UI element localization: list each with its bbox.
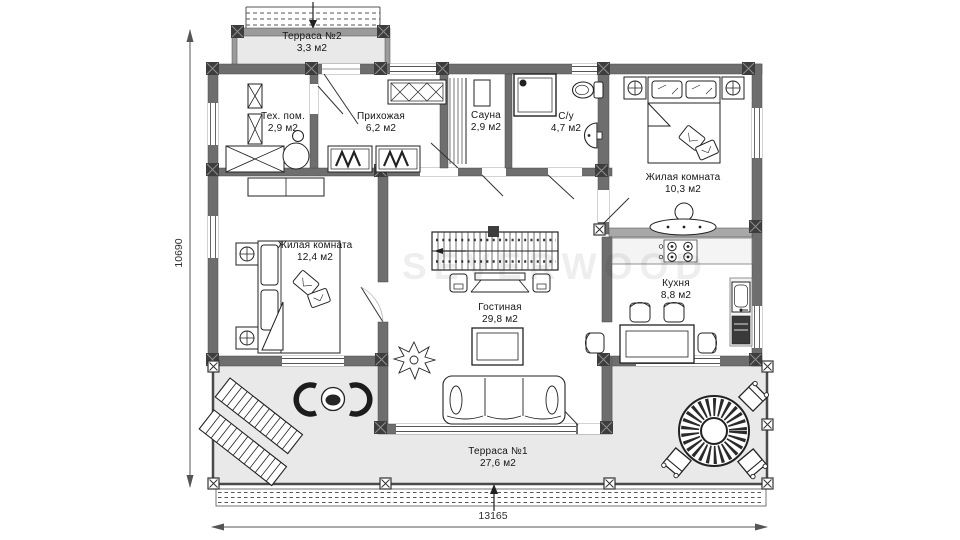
- room-label-hall: Прихожая 6,2 м2: [357, 111, 405, 135]
- room-name: Сауна: [471, 110, 501, 122]
- room-area: 8,8 м2: [661, 290, 691, 302]
- bedroom1-furniture: [236, 178, 340, 353]
- tv-unit: [450, 273, 550, 292]
- bedroom2-furniture: [624, 77, 744, 235]
- room-label-tech: Тех. пом. 2,9 м2: [261, 111, 305, 135]
- room-label-kitchen: Кухня 8,8 м2: [661, 278, 691, 302]
- room-label-terrace1: Терраса №1 27,6 м2: [468, 446, 527, 470]
- room-area: 29,8 м2: [478, 314, 522, 326]
- room-name: С/у: [551, 111, 581, 123]
- dimension-width: 13165: [458, 510, 528, 522]
- room-area: 10,3 м2: [646, 184, 721, 196]
- room-name: Жилая комната: [646, 172, 721, 184]
- room-label-living: Гостиная 29,8 м2: [478, 302, 522, 326]
- entry-steps: [246, 2, 380, 29]
- dimension-height: 10690: [173, 230, 185, 276]
- room-area: 6,2 м2: [357, 123, 405, 135]
- room-label-bedroom2: Жилая комната 10,3 м2: [646, 172, 721, 196]
- room-name: Кухня: [661, 278, 691, 290]
- room-label-wc: С/у 4,7 м2: [551, 111, 581, 135]
- room-name: Жилая комната: [278, 240, 353, 252]
- room-name: Терраса №2: [282, 31, 341, 43]
- room-area: 27,6 м2: [468, 458, 527, 470]
- floor-plan-canvas: SEVERWOOD Терраса №2 3,3 м2 Тех. пом. 2,…: [0, 0, 960, 540]
- room-area: 2,9 м2: [471, 122, 501, 134]
- room-area: 4,7 м2: [551, 123, 581, 135]
- room-label-bedroom1: Жилая комната 12,4 м2: [278, 240, 353, 264]
- deck-steps: [216, 484, 766, 511]
- room-area: 3,3 м2: [282, 43, 341, 55]
- kitchen-counter: [612, 238, 752, 264]
- plant: [394, 342, 435, 379]
- room-area: 12,4 м2: [278, 252, 353, 264]
- room-label-sauna: Сауна 2,9 м2: [471, 110, 501, 134]
- kitchen-sink-unit: [730, 278, 752, 346]
- room-name: Прихожая: [357, 111, 405, 123]
- room-name: Терраса №1: [468, 446, 527, 458]
- coffee-table: [472, 328, 523, 365]
- dining-table: [620, 325, 694, 363]
- sofa: [443, 376, 565, 424]
- room-label-terrace2: Терраса №2 3,3 м2: [282, 31, 341, 55]
- room-area: 2,9 м2: [261, 123, 305, 135]
- room-name: Тех. пом.: [261, 111, 305, 123]
- room-name: Гостиная: [478, 302, 522, 314]
- staircase: [432, 226, 558, 270]
